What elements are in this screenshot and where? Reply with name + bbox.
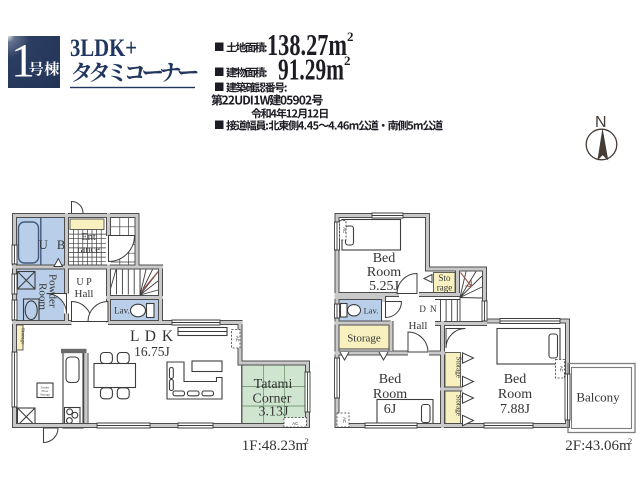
svg-text:1F:48.23m: 1F:48.23m <box>242 438 308 454</box>
svg-text:16.75J: 16.75J <box>134 344 170 359</box>
svg-text:Tatami: Tatami <box>254 377 293 392</box>
svg-text:91.29m: 91.29m <box>278 52 344 87</box>
svg-text:U B: U B <box>39 238 69 252</box>
svg-text:Bed: Bed <box>379 372 402 387</box>
svg-text:AC: AC <box>342 227 347 233</box>
svg-text:2: 2 <box>344 53 351 68</box>
svg-text:L D K: L D K <box>130 328 174 345</box>
svg-text:Room: Room <box>498 387 532 402</box>
svg-text:Storage: Storage <box>454 395 462 416</box>
svg-text:Balcony: Balcony <box>576 390 620 405</box>
svg-text:Hall: Hall <box>75 288 94 300</box>
svg-text:3LDK+: 3LDK+ <box>70 35 137 62</box>
svg-text:Lav.: Lav. <box>114 306 130 316</box>
svg-text:2: 2 <box>628 436 632 446</box>
svg-text:Room: Room <box>367 265 401 280</box>
svg-text:AC: AC <box>559 366 564 372</box>
svg-text:rance: rance <box>77 245 100 256</box>
svg-text:AC: AC <box>292 421 298 426</box>
svg-text:N: N <box>595 114 607 131</box>
svg-text:U P: U P <box>76 277 92 288</box>
svg-text:Storage: Storage <box>40 393 50 397</box>
svg-text:Room: Room <box>37 283 49 310</box>
svg-text:AC: AC <box>342 417 347 423</box>
svg-text:Room: Room <box>373 387 407 402</box>
svg-text:6J: 6J <box>384 402 397 417</box>
svg-text:2: 2 <box>347 29 354 44</box>
svg-text:1: 1 <box>11 35 35 88</box>
svg-text:Storage: Storage <box>347 333 381 345</box>
svg-text:2: 2 <box>305 436 309 446</box>
svg-text:rage: rage <box>437 283 453 293</box>
svg-text:5.25J: 5.25J <box>369 279 400 294</box>
svg-text:Storage: Storage <box>19 328 25 345</box>
svg-text:Sto: Sto <box>438 273 451 283</box>
svg-text:Bed: Bed <box>504 372 527 387</box>
svg-text:AC: AC <box>235 336 240 342</box>
svg-text:2F:43.06m: 2F:43.06m <box>565 438 631 454</box>
svg-text:Bed: Bed <box>373 251 396 266</box>
svg-text:Ent: Ent <box>81 232 96 243</box>
svg-text:Hall: Hall <box>409 320 428 332</box>
svg-text:Storage: Storage <box>454 357 462 378</box>
svg-text:7.88J: 7.88J <box>500 402 531 417</box>
svg-text:3.13J: 3.13J <box>259 405 290 420</box>
svg-text:Lav.: Lav. <box>364 306 379 316</box>
svg-text:D N: D N <box>419 304 437 314</box>
